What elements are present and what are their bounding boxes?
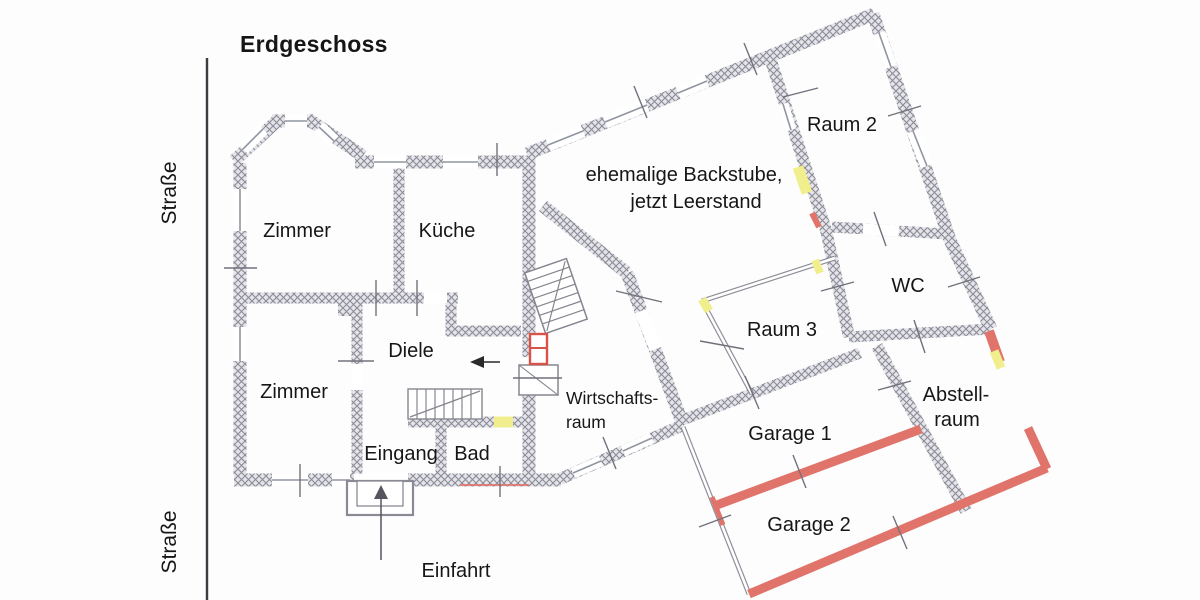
room-label-kueche: Küche bbox=[419, 220, 476, 242]
shaft-box bbox=[519, 365, 558, 395]
room-label-bad: Bad bbox=[454, 443, 490, 465]
room-label-wc: WC bbox=[891, 275, 924, 297]
entrance-porch bbox=[347, 481, 413, 560]
room-label-abstellraum-line2: raum bbox=[934, 409, 980, 431]
room-label-zimmer-top: Zimmer bbox=[263, 220, 331, 242]
street-label-top: Straße bbox=[158, 161, 181, 224]
area-label-einfahrt: Einfahrt bbox=[422, 560, 491, 582]
door-arrow bbox=[470, 356, 500, 368]
room-label-abstellraum-line1: Abstell- bbox=[923, 384, 990, 406]
oven-symbol bbox=[530, 334, 547, 364]
room-label-wirtschaftsraum-line1: Wirtschafts- bbox=[566, 388, 659, 408]
room-label-garage2: Garage 2 bbox=[767, 514, 850, 536]
room-label-garage1: Garage 1 bbox=[748, 423, 831, 445]
room-label-diele: Diele bbox=[388, 340, 434, 362]
floor-plan-page: Erdgeschoss Straße Straße Zimmer Küche Z… bbox=[0, 0, 1200, 600]
room-label-eingang: Eingang bbox=[364, 443, 437, 465]
stairs-hall bbox=[408, 389, 482, 419]
room-label-backstube-line2: jetzt Leerstand bbox=[629, 191, 761, 213]
room-label-backstube-line1: ehemalige Backstube, bbox=[586, 164, 783, 186]
exterior-walls bbox=[234, 14, 991, 480]
floor-plan-svg: Erdgeschoss Straße Straße Zimmer Küche Z… bbox=[0, 0, 1200, 600]
room-label-raum2: Raum 2 bbox=[807, 114, 877, 136]
room-label-raum3: Raum 3 bbox=[747, 319, 817, 341]
room-label-zimmer-bottom: Zimmer bbox=[260, 381, 328, 403]
page-title: Erdgeschoss bbox=[240, 31, 388, 57]
room-label-wirtschaftsraum-line2: raum bbox=[566, 412, 606, 432]
street-label-bottom: Straße bbox=[158, 510, 181, 573]
